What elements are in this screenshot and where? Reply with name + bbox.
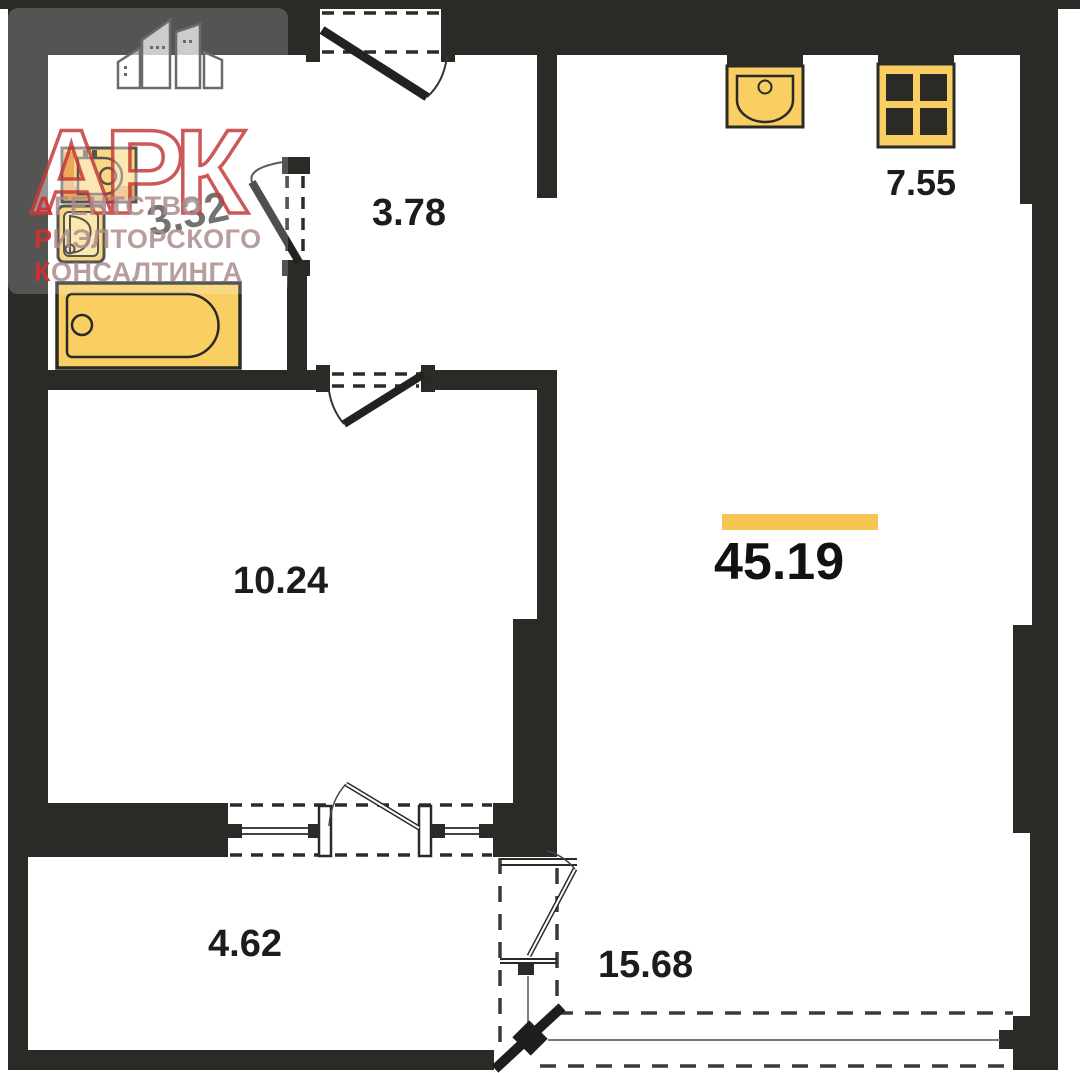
balcony-frame-post-right [419, 806, 431, 856]
wall-left-balcony [8, 857, 28, 1070]
balcony-sill-anchor-1 [228, 824, 242, 838]
terrace-door-leaf-inner [529, 869, 575, 956]
room-label-kitchen: 7.55 [886, 165, 956, 201]
room-door-arc [329, 391, 344, 424]
buildings-icon [118, 20, 222, 88]
room-label-total-area: 45.19 [714, 536, 844, 588]
room-door [329, 374, 424, 424]
room-label-hallway: 3.78 [372, 194, 446, 232]
entrance-jamb-left [306, 8, 320, 62]
wall-top-right [443, 8, 1058, 55]
kitchen-sink [727, 55, 803, 127]
stove-burner-1 [886, 74, 913, 101]
logo-text-line-2: РИЭЛТОРСКОГО [34, 223, 262, 256]
wall-bottom-balcony [8, 1050, 494, 1070]
wall-bathroom-bottom [48, 370, 318, 390]
agency-logo-watermark: АРК АГЕНТСТВО РИЭЛТОРСКОГО КОНСАЛТИНГА [8, 8, 288, 294]
balcony-block [228, 784, 493, 856]
wall-right-foot [1013, 1016, 1032, 1070]
wall-room-right-foot [493, 803, 557, 857]
stove-burner-4 [920, 108, 947, 135]
terrace-sill-anchor [518, 962, 534, 975]
wall-room-right-lower [513, 619, 557, 803]
total-area-highlight-bar [722, 514, 878, 530]
balcony-sill-anchor-3 [431, 824, 445, 838]
wall-right-3 [1013, 625, 1058, 833]
room-label-balcony: 4.62 [208, 925, 282, 963]
entrance-door-arc [427, 56, 447, 97]
wall-right-glazing-anchor [999, 1030, 1015, 1049]
room-door-jamb-left [316, 365, 330, 392]
logo-text-line-3: КОНСАЛТИНГА [34, 256, 262, 289]
wall-balcony-top [48, 803, 228, 857]
room-door-leaf [344, 374, 424, 424]
stove-burner-2 [920, 74, 947, 101]
wall-right-4 [1030, 833, 1058, 1070]
bathtub [57, 283, 240, 368]
balcony-frame-post-left [319, 806, 331, 856]
wall-right-2 [1032, 204, 1058, 625]
wall-room-right-upper [537, 390, 557, 619]
floor-plan: 3.32 3.78 7.55 10.24 45.19 4.62 15.68 [0, 0, 1080, 1073]
logo-text: АГЕНТСТВО РИЭЛТОРСКОГО КОНСАЛТИНГА [34, 190, 262, 289]
room-label-room: 10.24 [233, 562, 328, 600]
room-label-terrace: 15.68 [598, 946, 693, 984]
entrance-jamb-right [441, 8, 455, 62]
balcony-sill-anchor-4 [479, 824, 493, 838]
terrace-door [495, 851, 577, 1069]
stove-burner-3 [886, 108, 913, 135]
wall-hall-bottom [433, 370, 557, 390]
terrace-boundary [500, 858, 1013, 1066]
entrance-door [322, 30, 447, 97]
wall-right-1 [1020, 8, 1058, 204]
wall-hall-kitchen [537, 55, 557, 198]
logo-text-line-1: АГЕНТСТВО [34, 190, 262, 223]
stove [878, 55, 954, 147]
balcony-opening-dash [230, 805, 492, 855]
entrance-door-leaf [322, 30, 427, 97]
